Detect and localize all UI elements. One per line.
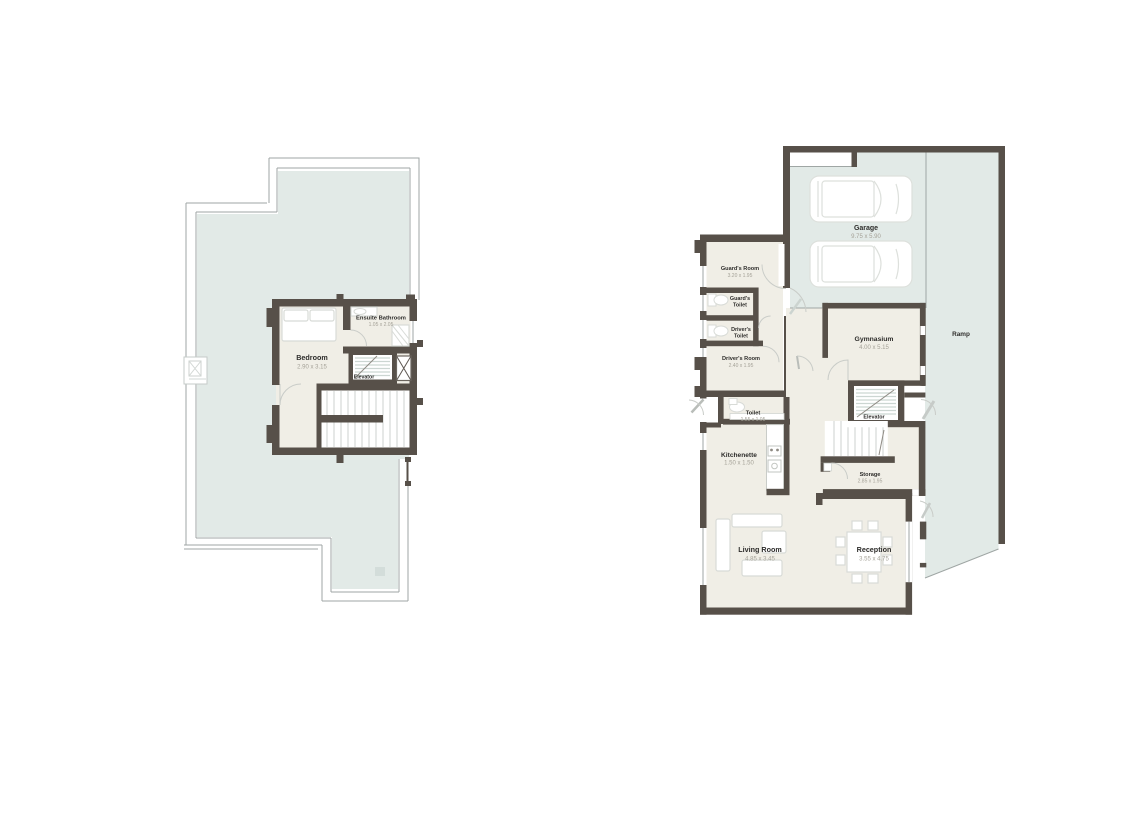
svg-text:Living Room: Living Room xyxy=(738,545,782,554)
svg-text:9.75 x 5.90: 9.75 x 5.90 xyxy=(851,234,881,240)
svg-text:Gymnasium: Gymnasium xyxy=(855,336,894,343)
svg-text:Toilet: Toilet xyxy=(746,411,761,417)
svg-text:1.55 x 1.05: 1.55 x 1.05 xyxy=(741,417,766,423)
svg-text:Garage: Garage xyxy=(854,225,878,232)
svg-text:3.20 x 1.95: 3.20 x 1.95 xyxy=(728,273,753,279)
svg-text:4.85 x 3.45: 4.85 x 3.45 xyxy=(745,557,775,563)
svg-text:Elevator: Elevator xyxy=(863,415,885,421)
svg-text:Bedroom: Bedroom xyxy=(296,353,328,362)
svg-text:Driver's: Driver's xyxy=(731,327,751,333)
svg-text:4.00 x 5.15: 4.00 x 5.15 xyxy=(859,345,889,351)
svg-text:Storage: Storage xyxy=(860,472,881,478)
svg-text:Toilet: Toilet xyxy=(734,334,748,340)
svg-text:1.05 x 2.05: 1.05 x 2.05 xyxy=(369,322,394,328)
svg-text:Toilet: Toilet xyxy=(733,303,747,309)
svg-text:Reception: Reception xyxy=(857,545,892,554)
svg-text:2.85 x 1.95: 2.85 x 1.95 xyxy=(858,479,883,485)
svg-text:Kitchenette: Kitchenette xyxy=(721,452,757,459)
svg-text:Guard's: Guard's xyxy=(730,296,750,302)
svg-text:Guard's Room: Guard's Room xyxy=(721,266,759,272)
svg-text:Elevator: Elevator xyxy=(354,375,374,381)
svg-text:Ramp: Ramp xyxy=(952,331,970,338)
svg-text:2.90 x 3.15: 2.90 x 3.15 xyxy=(297,365,327,371)
svg-text:Driver's Room: Driver's Room xyxy=(722,356,760,362)
svg-text:3.55 x 4.75: 3.55 x 4.75 xyxy=(859,557,889,563)
svg-text:Ensuite Bathroom: Ensuite Bathroom xyxy=(356,316,406,322)
svg-text:1.50 x 1.50: 1.50 x 1.50 xyxy=(724,461,754,467)
svg-text:2.40 x 1.95: 2.40 x 1.95 xyxy=(729,363,754,369)
